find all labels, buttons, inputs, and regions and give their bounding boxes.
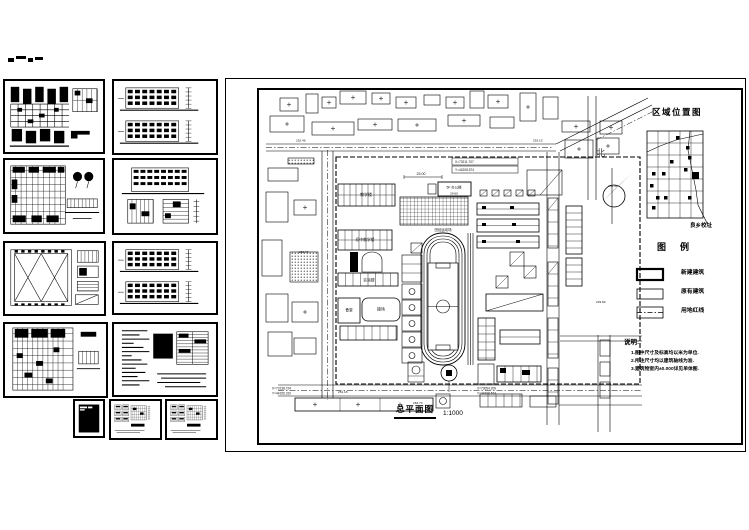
details-drawing (169, 403, 214, 436)
sports-courts (402, 243, 422, 363)
thumbnail-floor-plan-1[interactable] (3, 79, 105, 154)
thumbnail-elevations-2[interactable] (112, 241, 218, 315)
site-plan-drawing: 25.005F 办公楼29.60教学楼初中教学楼实验楼食堂操场田径运动场X=73… (258, 89, 742, 444)
location-map (647, 131, 707, 223)
dark-sheet-drawing (77, 403, 101, 434)
legend-label-site-boundary: 用地红线 (681, 309, 704, 315)
legend-label-new-building: 新建建筑 (681, 271, 704, 277)
legend-symbols (637, 269, 663, 318)
thumbnail-roof-plan[interactable] (3, 241, 106, 316)
plan-grid-fig-drawing (7, 162, 101, 230)
spot-elevation: 251.18 (338, 390, 348, 394)
note-line-2: 2.所注尺寸均以建筑轴线为准. (631, 360, 694, 365)
spot-elevation: 250.73 (299, 250, 309, 254)
coordinate-bl-y: Y=44156.310 (272, 392, 291, 396)
office-building-label: 5F 办公楼 (446, 185, 462, 190)
running-track (421, 233, 473, 365)
roof-x-drawing (7, 245, 102, 312)
legend-label-existing-building: 原有建筑 (681, 290, 704, 296)
thumbnail-detail-sheet-1[interactable] (109, 399, 162, 440)
coordinate-bl-x: X=73138.724 (272, 387, 291, 391)
caption-scale: 1:1000 (443, 410, 463, 419)
coordinate-br-y: Y=44208.574 (477, 392, 496, 396)
thumbnail-schedule-sheet[interactable] (112, 322, 218, 397)
coordinate-top-y: Y=44208.574 (455, 168, 474, 172)
spot-elevation: 253.15 (533, 139, 543, 143)
caption-title: 总平面图 (394, 403, 436, 419)
teaching-building-label: 教学楼 (360, 191, 372, 197)
north-arrow (603, 168, 633, 224)
spot-elevation: 249.80 (596, 300, 606, 304)
drawing-caption: 总平面图 1:1000 (394, 403, 463, 419)
note-line-3: 3.建筑物室内±0.000详见单体图. (631, 368, 699, 373)
spot-elevation: 252.48 (296, 139, 306, 143)
coordinate-br-x: X=73054.209 (477, 387, 496, 391)
elev-details-drawing (116, 162, 214, 231)
roads (266, 96, 660, 432)
dimension-label: 25.00 (417, 172, 426, 176)
coordinate-top-x: X=73211.707 (455, 160, 474, 164)
notes-title: 说明: (624, 340, 639, 347)
elev-pair-drawing (116, 245, 214, 311)
location-map-pointer-label: 良乡校址 (690, 224, 712, 230)
north-label: 北 (596, 149, 605, 158)
thumbnail-floor-plan-3[interactable] (3, 322, 108, 398)
thumbnail-detail-sheet-2[interactable] (165, 399, 218, 440)
thumbnail-floor-plan-2[interactable] (3, 158, 105, 234)
location-map-title: 区域位置图 (652, 108, 702, 117)
note-line-1: 1.图中尺寸及标高均以米为单位. (631, 352, 699, 357)
text-sheet-drawing (116, 326, 214, 393)
office-plaza (400, 175, 471, 225)
office-height-label: 29.60 (450, 192, 458, 196)
playground-label: 操场 (377, 306, 385, 312)
plan-dense-drawing (7, 83, 101, 150)
lab-building-label: 实验楼 (363, 278, 375, 283)
thumbnail-elevations-1[interactable] (112, 79, 218, 155)
legend-title: 图例 (657, 243, 703, 252)
thumbnail-elevation-details[interactable] (112, 158, 218, 235)
details-drawing (113, 403, 158, 436)
plan-large-drawing (7, 326, 104, 394)
campus-buildings-west (338, 184, 400, 340)
spot-elevation: 251.40 (608, 184, 618, 188)
canteen-label: 食堂 (345, 308, 353, 313)
elev-pair-drawing (116, 83, 214, 151)
junior-teaching-label: 初中教学楼 (356, 237, 375, 242)
track-label: 田径运动场 (435, 227, 453, 232)
thumbnail-cover-sheet[interactable] (73, 399, 105, 438)
page-canvas: 25.005F 办公楼29.60教学楼初中教学楼实验楼食堂操场田径运动场X=73… (0, 0, 749, 530)
